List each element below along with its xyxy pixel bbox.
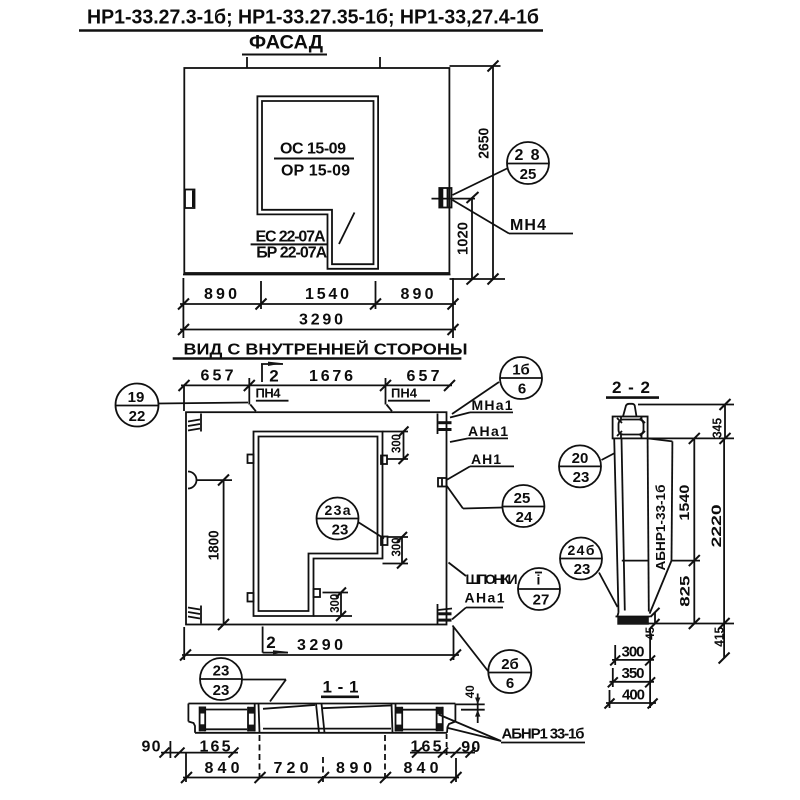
- svg-text:300: 300: [390, 537, 404, 556]
- svg-text:6: 6: [518, 381, 526, 398]
- svg-text:6: 6: [506, 675, 514, 692]
- svg-text:345: 345: [711, 418, 725, 438]
- svg-text:400: 400: [622, 687, 645, 704]
- svg-text:МН4: МН4: [510, 217, 546, 234]
- svg-text:ШПОНКИ: ШПОНКИ: [466, 571, 518, 587]
- svg-text:23: 23: [573, 469, 590, 486]
- svg-text:300: 300: [390, 434, 404, 453]
- svg-text:i: i: [537, 572, 541, 588]
- svg-text:825: 825: [676, 575, 692, 606]
- svg-text:1020: 1020: [454, 222, 471, 255]
- svg-text:890: 890: [204, 286, 237, 303]
- svg-text:ЕС 22-07А: ЕС 22-07А: [256, 229, 326, 246]
- svg-text:БР 22-07А: БР 22-07А: [256, 245, 327, 262]
- svg-text:90: 90: [142, 739, 161, 756]
- svg-text:19: 19: [128, 389, 145, 406]
- svg-text:40: 40: [463, 685, 477, 698]
- svg-text:1б: 1б: [512, 362, 530, 379]
- svg-text:24б: 24б: [568, 542, 595, 558]
- svg-text:300: 300: [328, 594, 342, 613]
- svg-text:ВИД С ВНУТРЕННЕЙ СТОРОНЫ: ВИД С ВНУТРЕННЕЙ СТОРОНЫ: [184, 340, 468, 359]
- svg-text:2: 2: [266, 633, 275, 652]
- svg-text:90: 90: [461, 739, 480, 756]
- svg-text:25: 25: [520, 166, 537, 183]
- svg-text:1540: 1540: [676, 484, 692, 520]
- svg-text:АН1: АН1: [471, 451, 501, 467]
- svg-text:2220: 2220: [708, 504, 724, 547]
- svg-text:ПН4: ПН4: [256, 386, 282, 401]
- svg-text:23а: 23а: [325, 502, 351, 518]
- svg-text:ОР 15-09: ОР 15-09: [281, 163, 350, 180]
- svg-text:415: 415: [713, 627, 727, 647]
- svg-text:2-2: 2-2: [612, 378, 650, 397]
- svg-text:22: 22: [129, 408, 146, 425]
- svg-text:20: 20: [572, 450, 589, 467]
- svg-text:ФАСАД: ФАСАД: [249, 33, 323, 54]
- svg-text:300: 300: [622, 644, 645, 661]
- svg-text:657: 657: [407, 368, 440, 385]
- svg-text:АБНР1 33-1б: АБНР1 33-1б: [502, 726, 585, 743]
- svg-text:АБНР1-33-1б: АБНР1-33-1б: [654, 484, 668, 570]
- svg-text:657: 657: [201, 368, 234, 385]
- svg-text:2: 2: [269, 367, 278, 386]
- svg-text:23: 23: [332, 522, 349, 539]
- svg-text:27: 27: [533, 592, 550, 609]
- svg-text:25: 25: [514, 490, 531, 507]
- svg-text:ПН4: ПН4: [391, 386, 418, 401]
- svg-text:ОС 15-09: ОС 15-09: [280, 141, 346, 158]
- svg-text:МНа1: МНа1: [472, 397, 513, 413]
- svg-text:2650: 2650: [476, 128, 493, 159]
- svg-text:840: 840: [404, 760, 439, 777]
- svg-text:1-1: 1-1: [323, 678, 359, 697]
- svg-text:АНа1: АНа1: [465, 590, 505, 606]
- svg-text:23: 23: [213, 682, 230, 699]
- svg-text:165: 165: [411, 739, 442, 756]
- svg-text:23: 23: [213, 663, 230, 680]
- svg-text:720: 720: [274, 760, 309, 777]
- svg-text:24: 24: [516, 509, 533, 526]
- svg-text:АНа1: АНа1: [468, 423, 508, 439]
- svg-text:840: 840: [205, 760, 240, 777]
- svg-text:1800: 1800: [206, 530, 223, 560]
- svg-text:165: 165: [200, 739, 231, 756]
- svg-text:890: 890: [401, 286, 434, 303]
- svg-text:350: 350: [622, 665, 645, 682]
- svg-text:НР1-33.27.3-1б; НР1-33.27.35-1: НР1-33.27.3-1б; НР1-33.27.35-1б; НР1-33,…: [87, 7, 539, 29]
- svg-text:2б: 2б: [501, 656, 519, 673]
- svg-text:23: 23: [574, 561, 591, 578]
- svg-text:890: 890: [336, 760, 372, 777]
